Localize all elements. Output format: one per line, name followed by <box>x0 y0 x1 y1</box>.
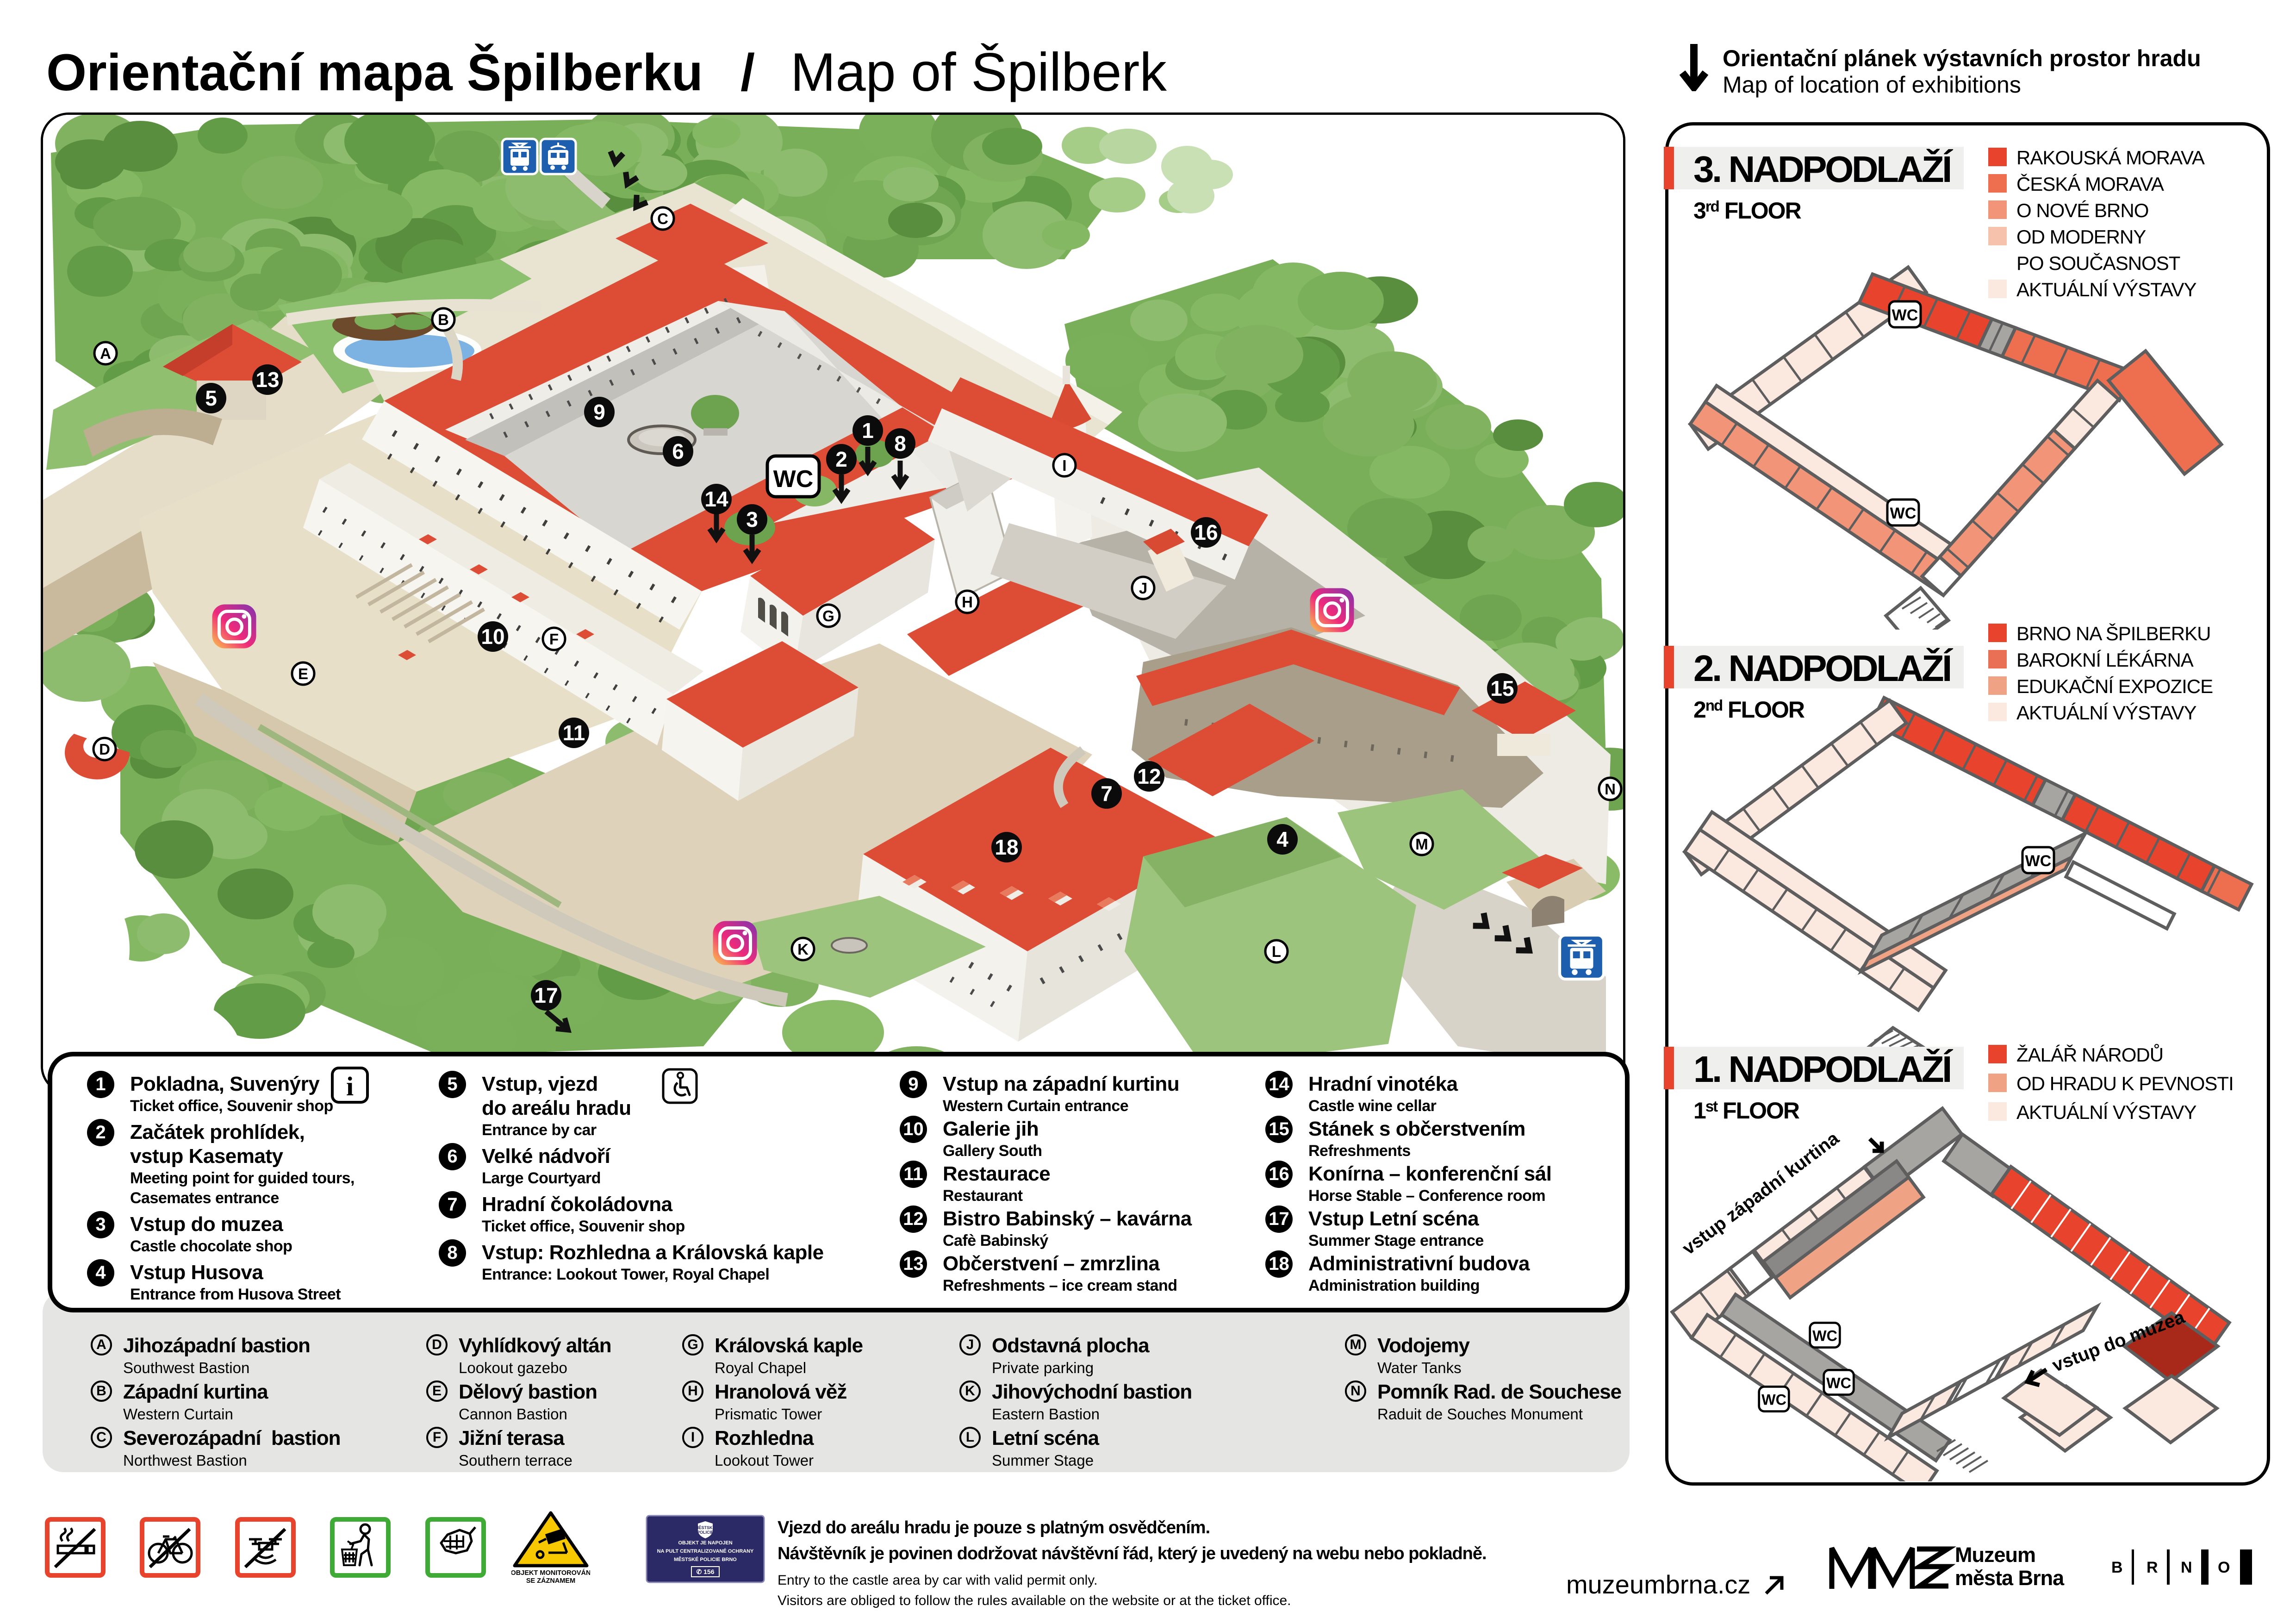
svg-text:G: G <box>822 607 834 625</box>
svg-text:R: R <box>2147 1559 2158 1576</box>
svg-text:6: 6 <box>672 439 684 463</box>
svg-text:i: i <box>346 1071 354 1101</box>
svg-text:2: 2 <box>835 447 847 471</box>
svg-text:B: B <box>438 311 449 328</box>
svg-text:10: 10 <box>481 625 504 649</box>
svg-text:K: K <box>797 941 809 958</box>
svg-text:L: L <box>1272 943 1281 960</box>
svg-text:11: 11 <box>563 721 585 745</box>
svg-text:NA PULT CENTRALIZOVANÉ OCHRANY: NA PULT CENTRALIZOVANÉ OCHRANY <box>657 1548 754 1554</box>
svg-text:města Brna: města Brna <box>1955 1566 2065 1589</box>
svg-text:9: 9 <box>593 400 605 424</box>
svg-text:14: 14 <box>704 487 728 511</box>
svg-text:OBJEKT JE NAPOJEN: OBJEKT JE NAPOJEN <box>678 1540 732 1546</box>
svg-text:WC: WC <box>1892 306 1918 324</box>
svg-text:N: N <box>1605 781 1616 798</box>
svg-text:WC: WC <box>1812 1327 1837 1344</box>
svg-text:H: H <box>962 593 973 611</box>
svg-text:WC: WC <box>1890 505 1916 522</box>
svg-text:D: D <box>99 741 110 758</box>
svg-text:O: O <box>2218 1559 2230 1576</box>
svg-text:POLICIE: POLICIE <box>697 1530 714 1535</box>
svg-text:15: 15 <box>1490 676 1514 700</box>
svg-text:WC: WC <box>1761 1391 1786 1408</box>
svg-text:5: 5 <box>205 386 217 410</box>
svg-text:F: F <box>549 631 559 648</box>
svg-text:WC: WC <box>2025 852 2052 870</box>
svg-text:B: B <box>2111 1559 2123 1576</box>
svg-text:7: 7 <box>1101 781 1113 806</box>
svg-text:E: E <box>298 665 308 682</box>
svg-text:8: 8 <box>894 431 906 456</box>
svg-text:WC: WC <box>1826 1374 1851 1391</box>
svg-text:C: C <box>657 210 668 227</box>
svg-text:OBJEKT MONITOROVÁN: OBJEKT MONITOROVÁN <box>511 1569 590 1577</box>
svg-text:16: 16 <box>1194 520 1218 544</box>
svg-text:A: A <box>100 345 111 362</box>
svg-text:Muzeum: Muzeum <box>1955 1546 2035 1567</box>
svg-text:J: J <box>1139 580 1147 597</box>
svg-text:M: M <box>1415 836 1428 853</box>
svg-text:17: 17 <box>534 983 558 1007</box>
svg-text:✆ 156: ✆ 156 <box>697 1568 715 1575</box>
svg-text:13: 13 <box>255 368 279 392</box>
svg-text:1: 1 <box>862 418 874 443</box>
svg-text:MĚSTSKÁ: MĚSTSKÁ <box>695 1525 716 1530</box>
svg-text:N: N <box>2181 1559 2192 1576</box>
svg-text:18: 18 <box>995 835 1018 859</box>
svg-text:3: 3 <box>746 507 758 531</box>
svg-text:SE ZÁZNAMEM: SE ZÁZNAMEM <box>526 1577 575 1584</box>
svg-text:WC: WC <box>773 466 814 493</box>
svg-text:4: 4 <box>1276 827 1288 851</box>
svg-text:MĚSTSKÉ POLICIE BRNO: MĚSTSKÉ POLICIE BRNO <box>674 1556 737 1562</box>
svg-text:12: 12 <box>1137 764 1161 788</box>
svg-text:I: I <box>1062 457 1066 474</box>
